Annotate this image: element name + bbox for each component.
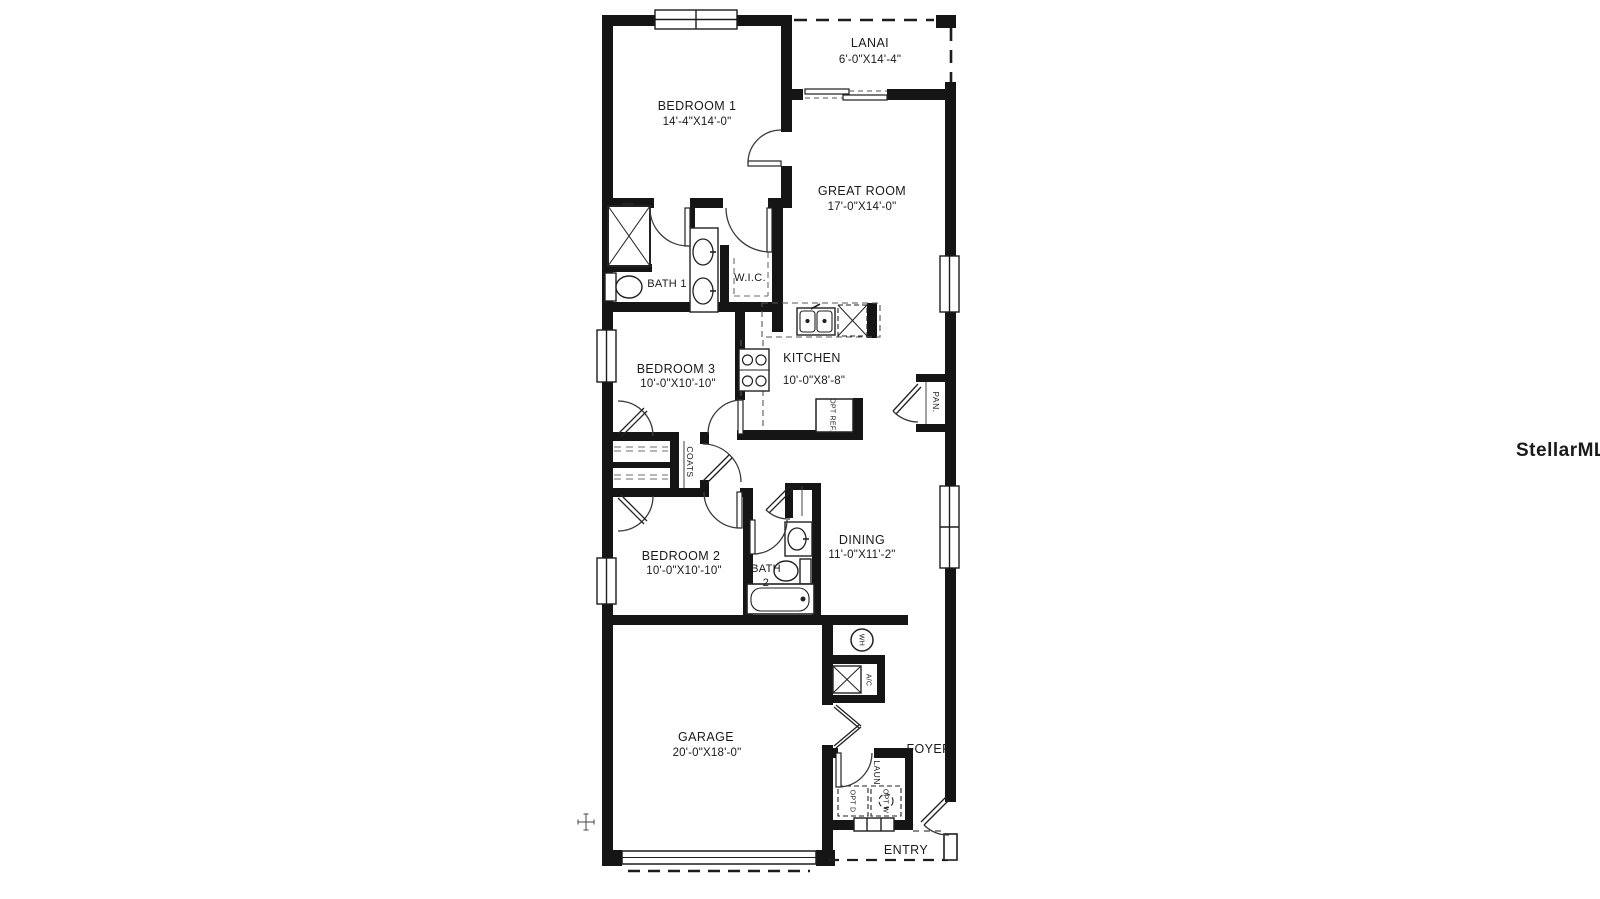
bedroom2-window xyxy=(597,558,616,604)
wic-label: W.I.C. xyxy=(734,272,766,284)
kitchen-label: KITCHEN xyxy=(783,351,841,365)
great-room-dims: 17'-0"X14'-0" xyxy=(828,201,897,213)
dining-window xyxy=(940,486,959,568)
walls xyxy=(602,15,956,866)
bath1-label: BATH 1 xyxy=(647,278,687,290)
bathtub xyxy=(747,584,814,614)
great-room-label: GREAT ROOM xyxy=(818,184,906,198)
ac-label: A/C xyxy=(865,674,872,687)
toilet xyxy=(605,273,642,301)
water-heater-label: WH xyxy=(858,634,865,646)
opt-dryer-label: OPT D xyxy=(849,790,856,813)
garage-dims: 20'-0"X18'-0" xyxy=(673,747,742,759)
double-vanity xyxy=(690,228,718,312)
floor-plan-page: StellarMLS xyxy=(0,0,1600,899)
pantry-label: PAN. xyxy=(931,391,941,412)
coats-label: COATS xyxy=(685,446,695,477)
range xyxy=(739,349,769,391)
bedroom1-dims: 14'-4"X14'-0" xyxy=(663,116,732,128)
laundry-window xyxy=(854,818,894,831)
floor-plan: StellarMLS xyxy=(0,0,1600,899)
dining-dims: 11'-0"X11'-2" xyxy=(828,549,895,561)
bedroom3-label: BEDROOM 3 xyxy=(637,362,716,376)
bedroom3-window xyxy=(597,330,616,382)
bedroom1-window xyxy=(655,10,737,29)
watermark-text: StellarMLS xyxy=(1516,440,1600,461)
bath2-label: BATH xyxy=(751,563,781,575)
lanai-dims: 6'-0"X14'-4" xyxy=(839,54,901,66)
doors xyxy=(618,130,949,835)
laundry-appliances xyxy=(838,786,901,816)
bath1-fixtures xyxy=(605,204,718,312)
bath2-vanity xyxy=(785,522,812,556)
great-room-window xyxy=(940,256,959,312)
windows xyxy=(597,10,959,831)
kitchen-dims: 10'-0"X8'-8" xyxy=(783,375,845,387)
opt-washer-label: OPT W xyxy=(882,789,889,813)
dishwasher xyxy=(838,305,867,336)
shower xyxy=(608,204,650,266)
opt-ref-label: OPT REF. xyxy=(829,398,836,432)
bedroom2-dims: 10'-0"X10'-10" xyxy=(646,565,721,577)
bedroom2-label: BEDROOM 2 xyxy=(642,549,721,563)
kitchen-sink xyxy=(797,304,835,335)
foyer-label: FOYER xyxy=(906,742,951,756)
laundry-label: LAUN. xyxy=(872,760,882,788)
bedroom1-label: BEDROOM 1 xyxy=(658,99,737,113)
ac-unit xyxy=(833,666,861,693)
bath2-number: 2 xyxy=(763,577,769,589)
dining-label: DINING xyxy=(839,533,885,547)
door-swings xyxy=(618,130,949,835)
garage-door xyxy=(622,851,816,871)
lanai-sliding-door xyxy=(803,87,887,101)
bedroom3-dims: 10'-0"X10'-10" xyxy=(640,378,715,390)
lanai-label: LANAI xyxy=(851,36,889,50)
garage-label: GARAGE xyxy=(678,730,734,744)
crosshair-mark xyxy=(578,814,594,830)
lanai-open-edges xyxy=(794,20,951,82)
entry-label: ENTRY xyxy=(884,843,928,857)
